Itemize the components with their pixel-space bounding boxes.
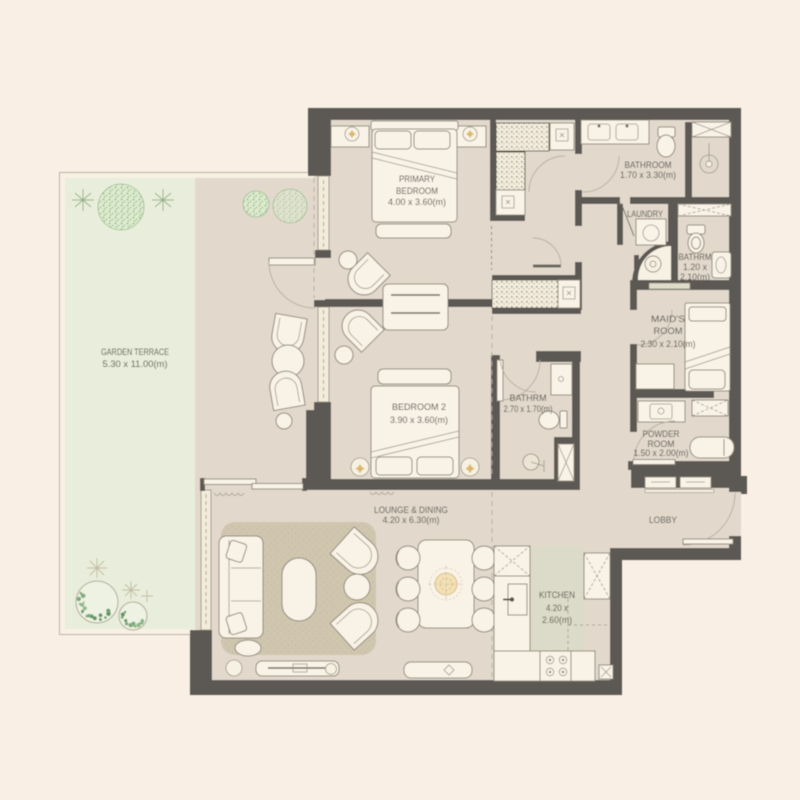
svg-text:BATHRM: BATHRM: [510, 393, 547, 404]
svg-text:4.20 x: 4.20 x: [546, 603, 568, 614]
svg-text:3.90 x 3.60(m): 3.90 x 3.60(m): [390, 415, 448, 426]
svg-text:KITCHEN: KITCHEN: [539, 590, 575, 601]
svg-text:MAID'S: MAID'S: [651, 314, 685, 325]
svg-text:LOBBY: LOBBY: [649, 515, 678, 526]
svg-text:GARDEN TERRACE: GARDEN TERRACE: [101, 347, 169, 358]
svg-text:1.70 x 3.30(m): 1.70 x 3.30(m): [620, 170, 676, 181]
svg-text:5.30 x 11.00(m): 5.30 x 11.00(m): [103, 359, 168, 370]
svg-text:BEDROOM: BEDROOM: [396, 186, 438, 197]
svg-text:2.30 x 2.10(m): 2.30 x 2.10(m): [641, 339, 696, 350]
svg-text:PRIMARY: PRIMARY: [399, 174, 436, 185]
svg-text:2.10(m): 2.10(m): [680, 272, 710, 283]
svg-text:2.70 x 1.70(m): 2.70 x 1.70(m): [504, 404, 553, 415]
svg-text:4.00 x 3.60(m): 4.00 x 3.60(m): [388, 197, 446, 208]
svg-text:4.20 x 6.30(m): 4.20 x 6.30(m): [383, 515, 440, 526]
svg-text:LAUNDRY: LAUNDRY: [627, 209, 664, 220]
svg-text:1.50 x 2.00(m): 1.50 x 2.00(m): [634, 448, 689, 459]
svg-text:2.60(m): 2.60(m): [542, 615, 572, 626]
svg-text:BEDROOM 2: BEDROOM 2: [392, 402, 446, 413]
svg-text:ROOM: ROOM: [654, 326, 683, 337]
